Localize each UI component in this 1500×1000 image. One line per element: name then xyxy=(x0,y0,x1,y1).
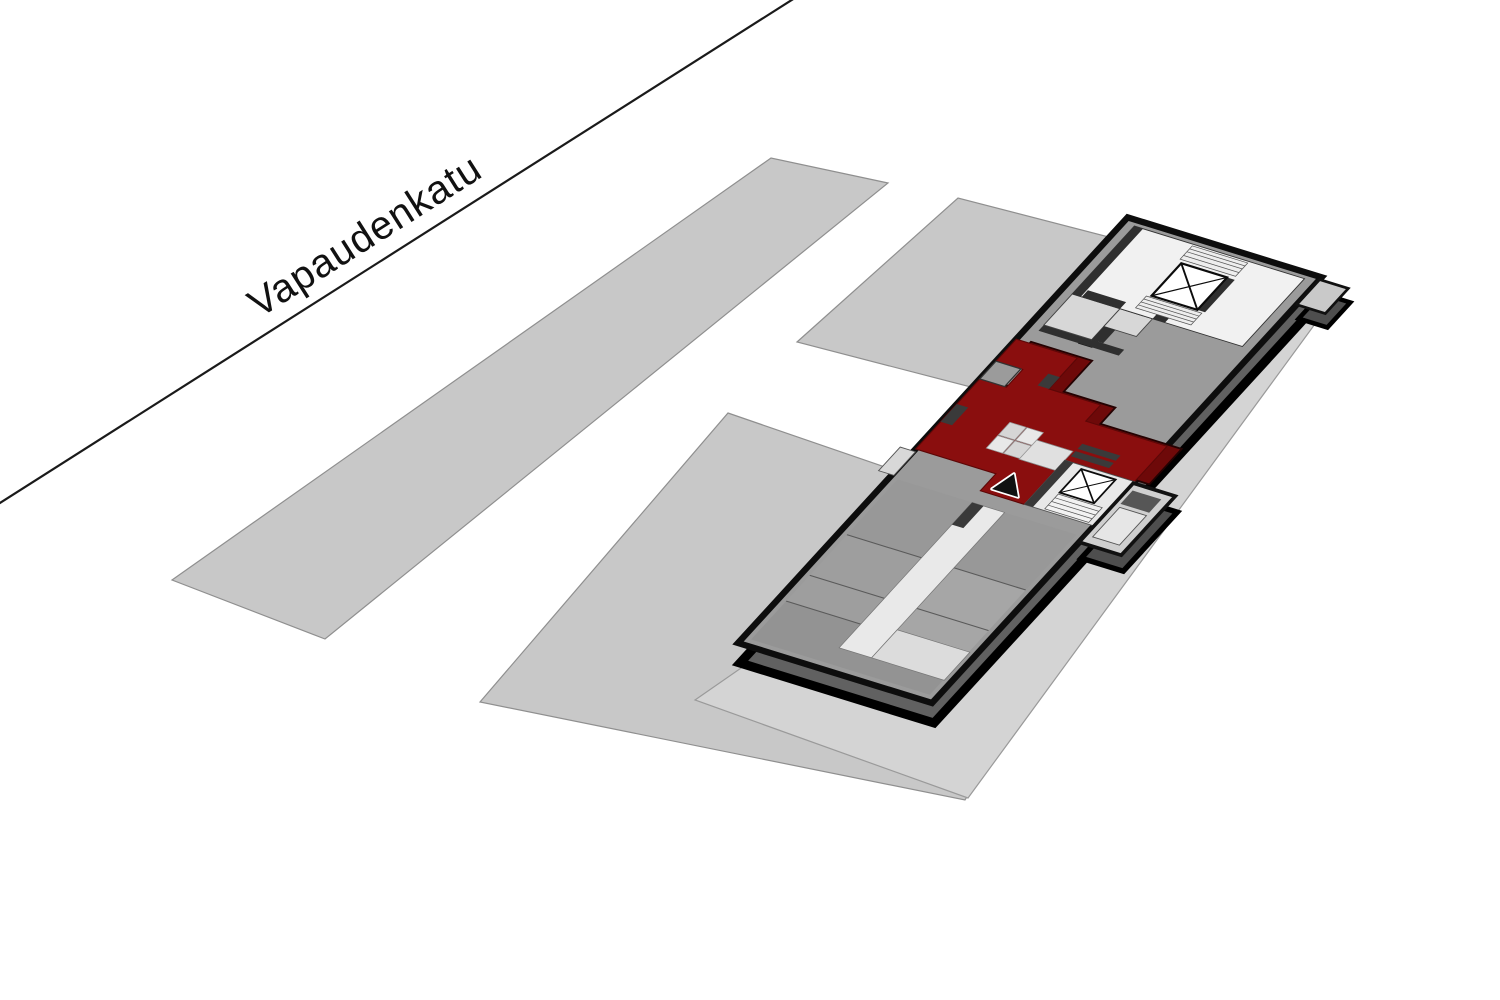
street-label: Vapaudenkatu xyxy=(241,146,490,326)
location-diagram: Vapaudenkatu xyxy=(0,0,1500,1000)
site-plan-canvas: Vapaudenkatu xyxy=(0,0,1500,1000)
